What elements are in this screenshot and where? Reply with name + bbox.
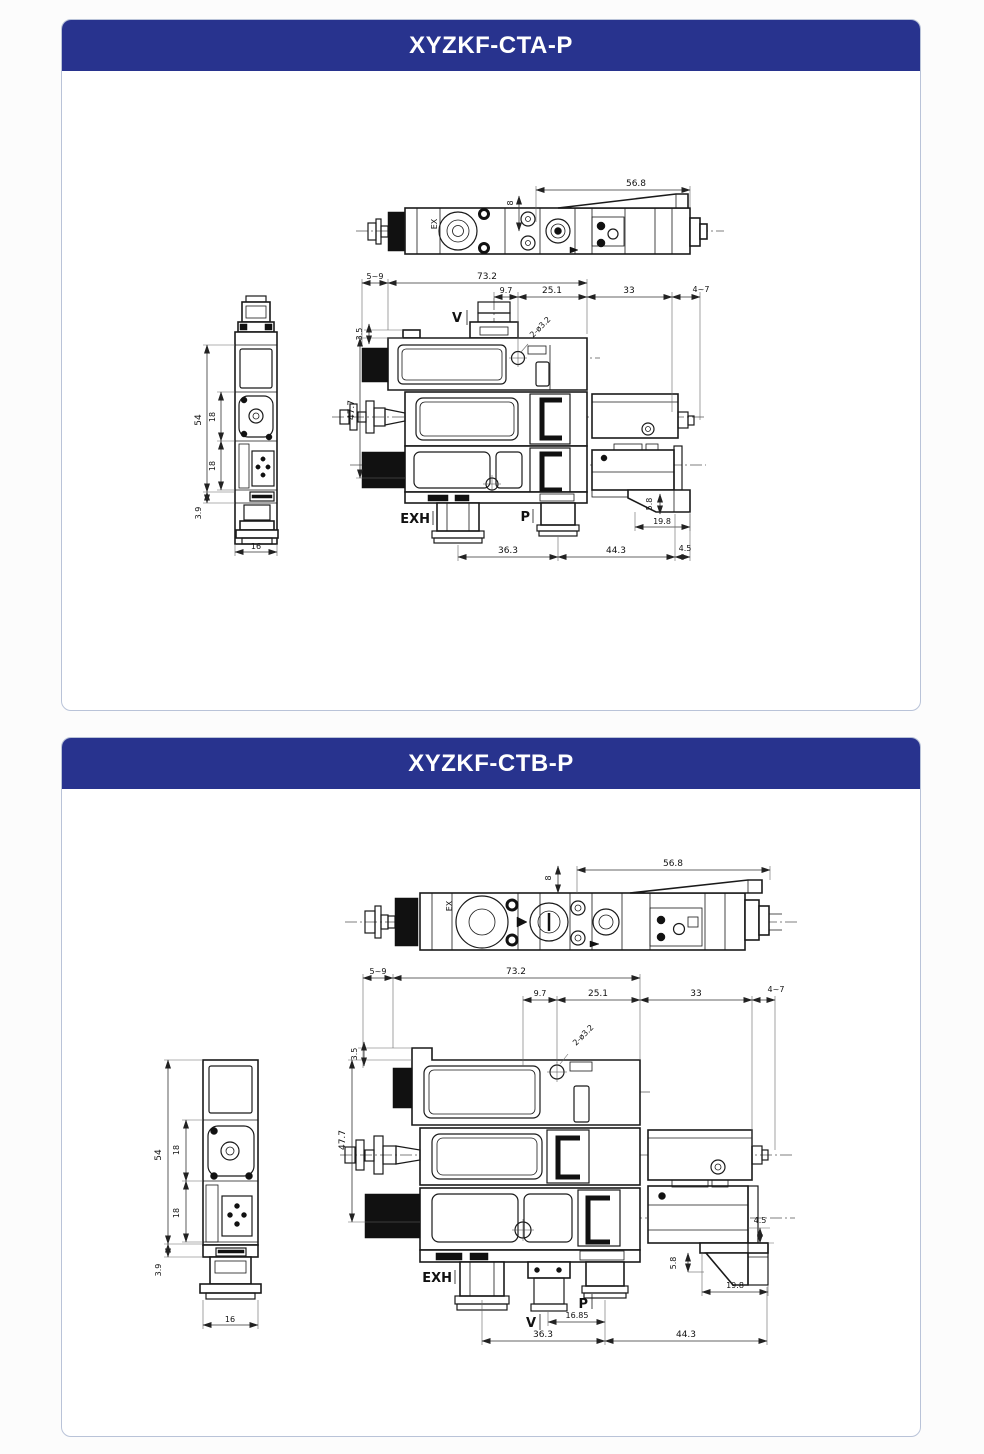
exh-port [432,503,484,543]
dim-label: 36.3 [533,1330,553,1340]
dim-label: 36.3 [498,546,518,556]
panel-xyzkf-ctb-p: XYZKF-CTB-P EX [61,737,921,1437]
ex-label: EX [430,218,439,229]
adjust-knob-black [362,348,388,382]
valve-top-band [412,1048,640,1125]
mounting-bracket [700,1243,768,1253]
panel-xyzkf-cta-p: XYZKF-CTA-P EX [61,19,921,711]
dim-label: 4.5 [679,544,692,553]
mounting-bracket [628,490,690,512]
dim-label: 18 [208,461,217,471]
p-port [537,503,579,536]
dim-label: 73.2 [477,272,497,282]
exh-port-label: EXH [422,1271,452,1286]
hole-callout: 2-ø3.2 [528,315,552,339]
dim-label: 3.9 [194,507,203,520]
front-view: V 2-ø3.2 [332,272,709,561]
technical-drawing-cta: EX 8 56.8 [62,71,919,708]
side-view: 54 18 18 3.9 16 [194,296,278,556]
dim-label: 9.7 [500,286,513,295]
dim-row-1: 5~9 73.2 [363,967,640,1068]
dim-label: 4.5 [754,1216,767,1225]
knurled-knob-black [362,452,405,488]
dim-bottom: 16.85 36.3 44.3 [482,1287,767,1345]
dim-label: 56.8 [626,179,646,189]
panel-a-title: XYZKF-CTA-P [409,32,573,60]
top-view: EX 8 [345,859,800,950]
panel-a-header: XYZKF-CTA-P [62,20,920,71]
valve-middle-band [420,1128,640,1185]
dim-side-segments: 18 18 [172,1120,203,1242]
exh-port-label: EXH [400,512,430,527]
dim-label: 3.5 [355,328,364,341]
release-lever [558,194,688,208]
dim-label: 3.5 [350,1048,359,1061]
right-block-mid [648,1130,752,1180]
dim-label: 3.9 [154,1264,163,1277]
dim-label: 9.7 [534,989,547,998]
dim-side-segments: 18 18 [208,392,235,490]
hole-callout: 2-ø3.2 [571,1023,595,1047]
dim-label: 4~7 [768,985,785,994]
dim-side-foot: 3.9 [154,1244,203,1276]
panel-b-title: XYZKF-CTB-P [408,750,573,778]
dim-label: 5~9 [370,967,387,976]
v-port-label: V [526,1316,536,1331]
release-lever [630,880,762,893]
dim-label: 54 [194,414,204,426]
technical-drawing-ctb: EX 8 [62,789,919,1435]
dim-label: 5~9 [367,272,384,281]
v-port-label: V [452,311,462,326]
dim-top-offset-8: 8 [544,866,558,893]
dim-label: 16 [251,542,261,551]
p-port [582,1262,628,1298]
top-view: EX 8 56.8 [356,179,724,254]
valve-top-band [388,338,587,390]
dim-label: 4~7 [693,285,710,294]
dim-label: 8 [506,200,515,205]
p-port-label: P [578,1297,588,1312]
dim-label: 8 [544,875,553,880]
dim-label: 18 [208,412,217,422]
dim-label: 44.3 [606,546,626,556]
v-port [528,1262,570,1311]
dim-label: 25.1 [588,989,608,999]
dim-label: 47.7 [338,1130,348,1150]
front-view: 2-ø3.2 [338,967,795,1345]
dim-label: 54 [154,1149,164,1161]
dim-label: 18 [172,1145,181,1155]
dim-label: 5.8 [645,498,654,511]
ex-label: EX [445,900,454,911]
side-view: 54 18 18 3.9 16 [154,1060,261,1329]
dim-label: 56.8 [663,859,683,869]
p-port-label: P [520,510,530,525]
panel-b-header: XYZKF-CTB-P [62,738,920,789]
knurled-knob [395,898,418,946]
right-block-mid [592,394,678,438]
dim-label: 19.8 [726,1281,744,1290]
knurled-knob-black [365,1194,420,1238]
dim-label: 73.2 [506,967,526,977]
dim-label: 16.85 [566,1311,589,1320]
dim-label: 44.3 [676,1330,696,1340]
dim-label: 33 [623,286,634,296]
dim-label: 5.8 [669,1257,678,1270]
page: XYZKF-CTA-P EX [0,0,984,1454]
adjust-knob-black [393,1068,412,1108]
dim-label: 33 [690,989,701,999]
dim-label: 47.7 [347,400,357,420]
dim-label: 19.8 [653,517,671,526]
knurled-knob [388,212,405,251]
dim-label: 25.1 [542,286,562,296]
dim-side-width: 16 [203,1300,258,1329]
dim-label: 18 [172,1208,181,1218]
dim-label: 16 [225,1315,235,1324]
dim-side-foot: 3.9 [194,492,235,519]
